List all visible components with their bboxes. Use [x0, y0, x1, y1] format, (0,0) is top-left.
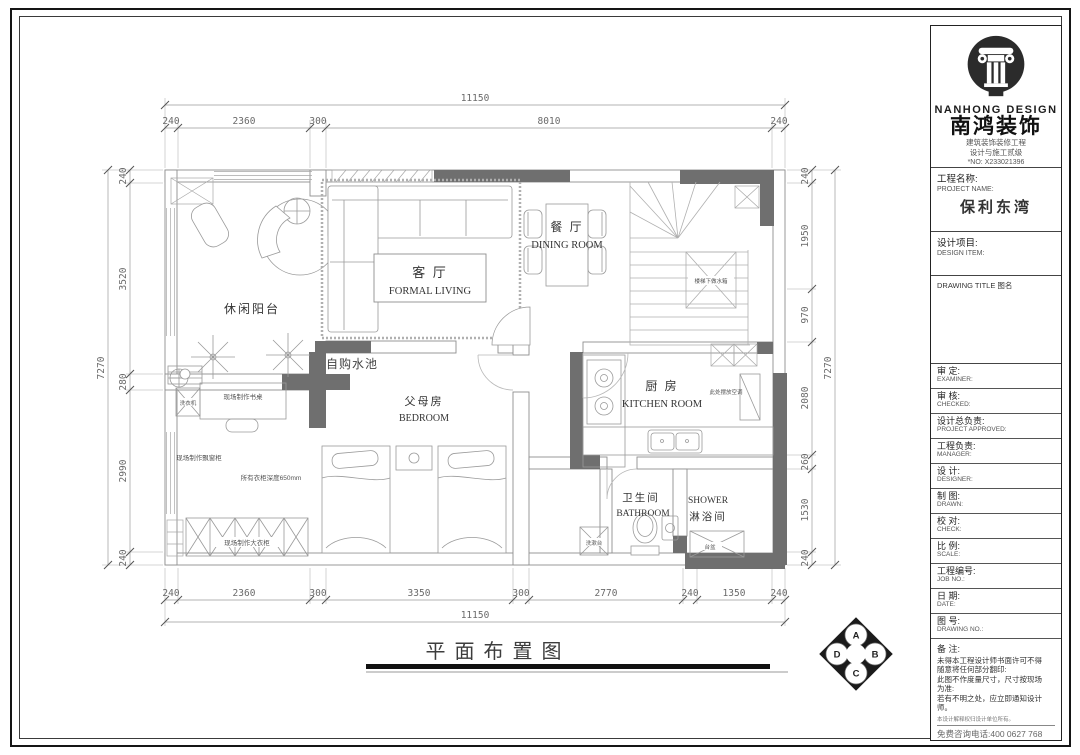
- label-kitchen-en: KITCHEN ROOM: [622, 399, 703, 410]
- note-vanity: 洗漱台: [586, 539, 603, 547]
- row-label-en: DRAWING NO.:: [937, 626, 1055, 633]
- title-block: NANHONG DESIGN 南鸿装饰 建筑装饰装修工程 设计与施工贰级 *NO…: [930, 25, 1062, 741]
- project-name-section: 工程名称: PROJECT NAME: 保利东湾: [931, 168, 1061, 232]
- dim-bottom-seg: 240: [770, 588, 787, 599]
- label-bedroom-en: BEDROOM: [399, 413, 449, 424]
- label-balcony: 休闲阳台: [224, 301, 280, 316]
- row-designer: 设 计: DESIGNER:: [931, 464, 1061, 489]
- dim-top-seg: 8010: [538, 116, 561, 127]
- beds: [322, 446, 506, 553]
- dim-bottom-seg: 1350: [723, 588, 746, 599]
- project-label-cn: 工程名称:: [937, 171, 1055, 185]
- row-scale: 比 例: SCALE:: [931, 539, 1061, 564]
- label-bedroom-cn: 父母房: [405, 395, 444, 408]
- dim-bottom-seg: 3350: [408, 588, 431, 599]
- design-item-section: 设计项目: DESIGN ITEM:: [931, 232, 1061, 276]
- row-label-en: CHECK:: [937, 526, 1055, 533]
- row-label-cn: 设计总负责:: [937, 416, 1055, 426]
- entry-door-arc: [492, 307, 530, 345]
- row-drawn: 制 图: DRAWN:: [931, 489, 1061, 514]
- dim-left-seg: 240: [118, 167, 129, 184]
- row-label-cn: 审 核:: [937, 391, 1055, 401]
- row-label-en: CHECKED:: [937, 401, 1055, 408]
- row-label-cn: 工程负责:: [937, 441, 1055, 451]
- dim-bottom-seg: 240: [162, 588, 179, 599]
- row-label-cn: 日 期:: [937, 591, 1055, 601]
- row-label-en: DRAWN:: [937, 501, 1055, 508]
- kitchen-fixtures: [583, 353, 773, 467]
- hotline: 免费咨询电话:400 0627 768: [937, 725, 1055, 740]
- title-underline-thick: [366, 664, 770, 669]
- row-job-no: 工程编号: JOB NO.:: [931, 564, 1061, 589]
- cert-line-2: 设计与施工贰级: [931, 148, 1061, 158]
- design-item-label-cn: 设计项目:: [937, 235, 1055, 249]
- note-line: 未得本工程设计师书面许可不得: [937, 656, 1055, 666]
- row-label-cn: 校 对:: [937, 516, 1055, 526]
- label-bathroom-cn: 卫生间: [622, 491, 660, 504]
- compass-b: B: [872, 650, 879, 661]
- row-date: 日 期: DATE:: [931, 589, 1061, 614]
- row-examiner: 审 定: EXAMINER:: [931, 364, 1061, 389]
- compass: A B C D: [819, 617, 893, 691]
- design-item-label-en: DESIGN ITEM:: [937, 250, 1055, 257]
- floor-plan-drawing: 11150 240 2360 300 8010 240 11150 240 23…: [0, 0, 1080, 755]
- dim-top-seg: 300: [309, 116, 326, 127]
- row-label-en: DATE:: [937, 601, 1055, 608]
- drawing-title-text: 平面布置图: [426, 640, 571, 663]
- dim-bottom-seg: 2770: [595, 588, 618, 599]
- dim-right-seg: 970: [800, 306, 811, 323]
- label-dining-en: DINING ROOM: [531, 240, 603, 251]
- row-label-en: DESIGNER:: [937, 476, 1055, 483]
- compass-c: C: [853, 669, 860, 680]
- project-name-value: 保利东湾: [937, 196, 1055, 217]
- dim-right-seg: 260: [800, 453, 811, 470]
- row-drawing-no: 图 号: DRAWING NO.:: [931, 614, 1061, 639]
- column-logo-icon: [964, 34, 1028, 98]
- row-check: 校 对: CHECK:: [931, 514, 1061, 539]
- staircase: [630, 182, 750, 345]
- note-line: 师。: [937, 703, 1055, 713]
- dim-bottom-seg: 2360: [233, 588, 256, 599]
- window-box-stair: [735, 186, 759, 208]
- note-basin: 台盆: [704, 543, 716, 551]
- nightstand: [396, 446, 432, 470]
- row-project-approved: 设计总负责: PROJECT APPROVED:: [931, 414, 1061, 439]
- drawing-title-section: DRAWING TITLE 图名: [931, 276, 1061, 364]
- bedroom-door-arc: [478, 355, 513, 390]
- row-label-en: EXAMINER:: [937, 376, 1055, 383]
- row-label-en: PROJECT APPROVED:: [937, 426, 1055, 433]
- dim-right-seg: 2080: [800, 386, 811, 409]
- note-wardrobe-depth: 所有衣柜深度650mm: [241, 473, 302, 482]
- compass-d: D: [834, 650, 841, 661]
- label-living-en: FORMAL LIVING: [389, 286, 472, 297]
- label-shower-cn: 淋浴间: [689, 510, 727, 523]
- note-fridge: 此处摆放空调: [709, 388, 743, 396]
- dim-top-seg: 240: [162, 116, 179, 127]
- dim-bottom-seg: 300: [512, 588, 529, 599]
- wardrobe: [186, 518, 308, 556]
- label-living-cn: 客 厅: [412, 265, 448, 280]
- note-sink: 自购水池: [326, 356, 378, 371]
- row-label-cn: 制 图:: [937, 491, 1055, 501]
- note-line: 随意将任何部分翻印:: [937, 665, 1055, 675]
- dim-top-total: 11150: [461, 93, 490, 104]
- note-bay-cabinet: 现场制作飘窗柜: [176, 453, 222, 462]
- row-label-cn: 工程编号:: [937, 566, 1055, 576]
- dim-right-seg: 1950: [800, 224, 811, 247]
- row-label-cn: 审 定:: [937, 366, 1055, 376]
- row-label-en: SCALE:: [937, 551, 1055, 558]
- row-label-en: MANAGER:: [937, 451, 1055, 458]
- row-checked: 审 核: CHECKED:: [931, 389, 1061, 414]
- label-bathroom-en: BATHROOM: [616, 509, 670, 519]
- drawing-footer: 平面布置图: [366, 640, 788, 672]
- note-stair-tank: 楼梯下做水箱: [694, 277, 728, 285]
- note-fine-print: 本设计解释权归设计单位所有。: [937, 715, 1055, 723]
- drawing-title-label: DRAWING TITLE 图名: [937, 280, 1055, 291]
- notes-label: 备 注:: [937, 642, 1055, 655]
- dim-right-seg: 240: [800, 549, 811, 566]
- dim-left-seg: 2990: [118, 459, 129, 482]
- label-kitchen-cn: 厨 房: [645, 378, 678, 393]
- company-logo-section: NANHONG DESIGN 南鸿装饰 建筑装饰装修工程 设计与施工贰级 *NO…: [931, 26, 1061, 168]
- dim-left-seg: 3520: [118, 267, 129, 290]
- row-label-cn: 设 计:: [937, 466, 1055, 476]
- note-washer: 洗衣机: [180, 399, 197, 407]
- balcony-lounge-chair: [188, 198, 338, 275]
- row-label-en: JOB NO.:: [937, 576, 1055, 583]
- dim-left-seg: 280: [118, 373, 129, 390]
- dim-bottom-seg: 240: [681, 588, 698, 599]
- label-dining-cn: 餐 厅: [550, 219, 583, 234]
- dim-bottom-total: 11150: [461, 610, 490, 621]
- row-label-cn: 比 例:: [937, 541, 1055, 551]
- note-line: 此图不作度量尺寸，尺寸按现场: [937, 675, 1055, 685]
- note-line: 为准:: [937, 684, 1055, 694]
- cert-number: *NO: X233021396: [931, 159, 1061, 166]
- note-wardrobe: 现场制作大衣柜: [224, 538, 270, 547]
- row-manager: 工程负责: MANAGER:: [931, 439, 1061, 464]
- note-line: 若有不明之处，应立即通知设计: [937, 694, 1055, 704]
- dim-right-total: 7270: [823, 356, 834, 379]
- row-label-cn: 图 号:: [937, 616, 1055, 626]
- label-shower-en: SHOWER: [688, 496, 729, 506]
- dim-top-seg: 2360: [233, 116, 256, 127]
- note-desk: 现场制作书桌: [224, 392, 264, 401]
- dim-left-total: 7270: [96, 356, 107, 379]
- dim-left-seg: 240: [118, 549, 129, 566]
- dim-right-seg: 1530: [800, 498, 811, 521]
- compass-a: A: [853, 631, 860, 642]
- dim-right-seg: 240: [800, 167, 811, 184]
- dim-bottom-seg: 300: [309, 588, 326, 599]
- cert-line-1: 建筑装饰装修工程: [931, 138, 1061, 148]
- notes-section: 备 注: 未得本工程设计师书面许可不得 随意将任何部分翻印: 此图不作度量尺寸，…: [931, 639, 1061, 741]
- project-label-en: PROJECT NAME:: [937, 186, 1055, 193]
- brand-name-cn: 南鸿装饰: [931, 116, 1061, 138]
- dim-top-seg: 240: [770, 116, 787, 127]
